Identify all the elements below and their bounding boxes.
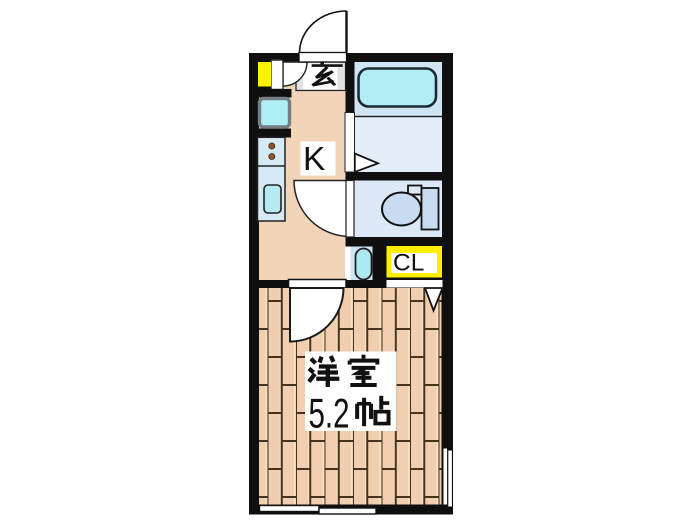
svg-text:5.2: 5.2 (309, 390, 350, 437)
svg-text:K: K (303, 141, 325, 178)
svg-text:CL: CL (393, 250, 424, 277)
